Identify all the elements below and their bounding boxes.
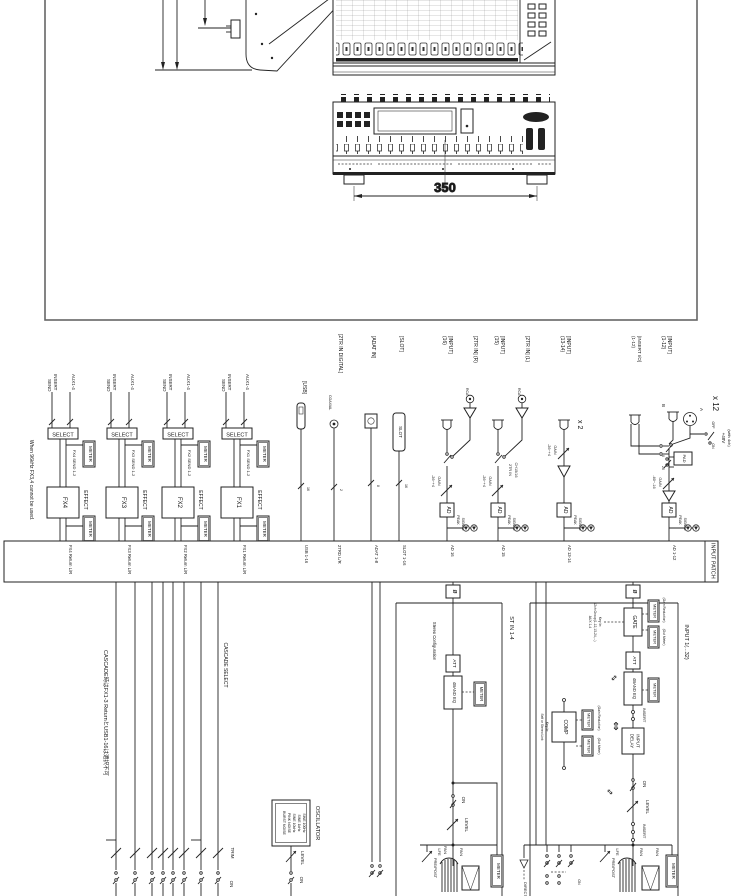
- patch-src: SLOT 1-16: [402, 545, 407, 566]
- cascade-select-section: CASCADE時はFX1-3 ReturnとUSB1-16は選択不可 CASCA…: [102, 582, 235, 896]
- coaxial-label: COAXIAL: [328, 395, 332, 410]
- level-label: LEVEL: [300, 851, 305, 866]
- input-channel-strip: INPUT 1(...32) ø GATE METER METER (Gain …: [520, 582, 689, 896]
- fx-send-label: FX4 SEND 1-2: [72, 450, 77, 477]
- page-canvas: 350 When 96kHz FX3,4 cannot be used. INS…: [0, 0, 734, 896]
- select-label: SELECT: [226, 433, 248, 439]
- fx4-chain: INSERT SEND AUX1-4 SELECT FX4 SEND 1-2 M…: [47, 374, 95, 542]
- slot-label: [SLOT]: [398, 336, 404, 352]
- aux-label: AUX1-4: [71, 374, 76, 390]
- trim-label: TRIM: [230, 848, 235, 859]
- insert-label: INSERT: [642, 708, 647, 723]
- gain-reduction-note: (Gain Reduction): [597, 706, 601, 731]
- osc-source: PINK NOISE: [287, 813, 291, 834]
- patch-src: 2TRD L/R: [337, 545, 342, 564]
- osc-source: SINE 100Hz: [302, 813, 306, 833]
- slot-box-label: SLOT: [398, 426, 403, 438]
- aux-label: AUX1-4: [245, 374, 250, 390]
- comp-label: COMP: [562, 720, 568, 736]
- insert-send-label: INSERT: [168, 374, 173, 391]
- insert-send-label: INSERT: [53, 374, 58, 391]
- fx-send-label: FX2 SEND 1-2: [187, 450, 192, 477]
- adat-input: [ADAT IN] 8: [365, 336, 380, 541]
- scanned-manual-page: 350 When 96kHz FX3,4 cannot be used. INS…: [0, 0, 734, 896]
- meter-label: METER: [262, 521, 267, 538]
- select-label: SELECT: [52, 433, 74, 439]
- patch-src: FX3 Return L/R: [127, 545, 132, 574]
- oscillator-label: OSCILLATOR: [314, 806, 320, 840]
- phone-jack-icon: [667, 412, 679, 422]
- usb-input: [USB] 16: [297, 381, 310, 541]
- pan-label: PAN: [459, 848, 464, 856]
- rca-label: RCA: [465, 388, 469, 396]
- phantom-off-label: OFF: [711, 422, 715, 429]
- foot-left: [344, 175, 364, 184]
- aux-label: AUX1-4: [130, 374, 135, 390]
- width-dimension-label: 350: [434, 180, 456, 195]
- on-label: ON: [577, 879, 581, 885]
- patch-src: FX1 Return L/R: [242, 545, 247, 574]
- osc-source: SINE 10kHz: [292, 813, 296, 832]
- insert-send-label: SEND: [47, 379, 52, 392]
- fx-name: FX4: [61, 497, 67, 509]
- input-num: (1-12): [660, 336, 666, 350]
- insert-send-label: INSERT: [112, 374, 117, 391]
- phase-symbol: ø: [631, 589, 638, 594]
- peak-label: PEAK: [573, 515, 577, 525]
- on-label: ON: [642, 781, 647, 788]
- input-num: (13-14): [559, 336, 565, 352]
- effect-label: EFFECT: [197, 490, 203, 509]
- insert-label: INSERT: [642, 824, 647, 839]
- fx-send-label: FX1 SEND 1-2: [246, 450, 251, 477]
- console-front-view: 350: [333, 94, 555, 201]
- patch-src: AD 15: [501, 545, 506, 557]
- on-label: ON: [299, 877, 304, 884]
- lfe-label: LFE: [437, 848, 442, 856]
- insert-send-label: SEND: [221, 379, 226, 392]
- ad-label: AD: [562, 507, 568, 514]
- comp-module: COMP METER METER (Gain Reduction) (Out M…: [540, 699, 601, 770]
- gate-label: GATE: [631, 615, 637, 629]
- xlr-connector-icon: [684, 413, 697, 426]
- patch-src: FX2 Return L/R: [183, 545, 188, 574]
- comp-keyin-note: Self or Stereo Link: [540, 713, 544, 740]
- meter-label: METER: [653, 630, 658, 644]
- pan-label: PAN: [443, 846, 448, 854]
- ch1516-note: CH15/16: [514, 463, 518, 478]
- gain-range: -26~+4: [431, 475, 435, 487]
- insert-io-label: [INSERT I/O]: [637, 336, 642, 362]
- aux-label: AUX1-4: [186, 374, 191, 390]
- on-label: ON: [229, 881, 234, 888]
- phone-jack-icon: [629, 415, 641, 425]
- input-1-32-label: INPUT 1(...32): [683, 624, 689, 660]
- gain-label: GAIN: [488, 476, 492, 486]
- gate-keyin-note: AUX 1-4: [588, 616, 592, 629]
- eq-label: 4BAND EQ: [632, 678, 637, 700]
- pad-label: PAD: [682, 455, 687, 463]
- fx-name: FX2: [176, 497, 182, 509]
- effect-label: EFFECT: [256, 490, 262, 509]
- gain-label: GAIN: [437, 476, 441, 486]
- adat-label: [ADAT IN]: [370, 336, 376, 359]
- front-knob-row: [336, 136, 523, 154]
- bus-count: 8: [376, 485, 380, 487]
- peak-label: PEAK: [678, 515, 682, 525]
- jack-b-label: B: [661, 404, 666, 407]
- peak-label: PEAK: [507, 515, 511, 525]
- fx1-chain: INSERT SEND AUX1-4 SELECT FX1 SEND 1-2 M…: [221, 374, 269, 542]
- meter-label: METER: [671, 863, 676, 880]
- 2tr-r-label: [2TR IN] (R): [472, 336, 478, 363]
- pan-label: PAN: [655, 848, 660, 856]
- pan-box: [462, 866, 479, 890]
- display: [374, 108, 456, 134]
- patch-src: AD 16: [450, 545, 455, 557]
- lfe-label: LFE: [615, 848, 620, 856]
- insert-io-chain: [INSERT I/O] (1-12): [629, 336, 669, 455]
- on-label: ON: [461, 797, 466, 804]
- signal-label: SIGNAL: [578, 518, 582, 531]
- clamp-bracket: [231, 20, 240, 38]
- comp-keyin-note: Key In:: [545, 722, 549, 732]
- xlr-a-label: A: [699, 408, 704, 411]
- ch1516-note: 2TR IN: [508, 464, 512, 476]
- meter-label: METER: [653, 604, 658, 618]
- select-label: SELECT: [167, 433, 189, 439]
- meter-label: METER: [88, 446, 93, 463]
- slot-input: [SLOT] SLOT 16: [393, 336, 408, 541]
- meter-label: METER: [653, 683, 658, 697]
- phantom-sub-label: (with 4ch): [727, 429, 732, 447]
- console-top-view: [333, 0, 555, 75]
- cascade-switch-contacts: [115, 872, 220, 882]
- fader-row: [336, 42, 523, 56]
- adat-connector-icon: [365, 414, 377, 428]
- direct-out-arrow-icon: [520, 860, 528, 868]
- insert-send-label: SEND: [162, 379, 167, 392]
- phantom-voltage-label: +48V: [721, 433, 726, 444]
- pan-box: [642, 866, 659, 890]
- direct-label: DIRECT: [523, 882, 528, 896]
- select-label: SELECT: [111, 433, 133, 439]
- meter-label: METER: [147, 521, 152, 538]
- eq-label: 4BAND EQ: [452, 682, 457, 704]
- gain-label: GAIN: [553, 445, 557, 455]
- 2tr-in-digital-input: [2TR IN DIGITAL] COAXIAL 2: [328, 334, 343, 541]
- out-meter-note: (Out Meter): [597, 738, 601, 755]
- fx-send-label: FX3 SEND 1-2: [131, 450, 136, 477]
- note-96khz: When 96kHz FX3,4 cannot be used.: [28, 440, 34, 520]
- fx-name: FX1: [235, 497, 241, 509]
- input-1-12-chain: [INPUT] (1-12) x 12 A B OFF ON +48V (wit…: [652, 336, 732, 541]
- bus-count: 16: [306, 487, 310, 491]
- out-meter-note: (Out Meter): [662, 629, 666, 646]
- phone-jack-icon: [492, 420, 504, 430]
- pad-26: 26: [661, 466, 665, 470]
- input-patch-bar: INPUT PATCH FX4 Return L/R FX3 Return L/…: [4, 541, 718, 582]
- signal-label: SIGNAL: [683, 518, 687, 531]
- prepost-label: PRE/POST: [433, 858, 438, 879]
- fx-name: FX3: [120, 497, 126, 509]
- swap-arrow-icon: ⇕: [611, 721, 620, 733]
- input-patch-label: INPUT PATCH: [710, 543, 716, 579]
- meter-label: METER: [88, 521, 93, 538]
- gain-label: GAIN: [658, 477, 662, 487]
- input-delay-label: DELAY: [630, 734, 635, 748]
- oscillator-section: SINE 100Hz SINE 1kHz SINE 10kHz PINK NOI…: [272, 800, 320, 896]
- patch-src: USB 1-16: [304, 545, 309, 564]
- gate-keyin-note: Key In:: [598, 617, 602, 627]
- gain-range: -60~-16: [652, 475, 656, 488]
- dimension-drawing-frame: 350: [45, 0, 697, 320]
- signal-label: SIGNAL: [512, 518, 516, 531]
- patch-src: FX4 Return L/R: [68, 545, 73, 574]
- patch-src: AD 13-14: [567, 545, 572, 563]
- phantom-on-label: ON: [711, 443, 715, 449]
- foot-right: [527, 175, 547, 184]
- bus-count: 16: [404, 484, 408, 488]
- meter-label: METER: [203, 446, 208, 463]
- st-in-label: ST IN 1-4: [508, 616, 514, 639]
- insert-send-label: SEND: [106, 379, 111, 392]
- pad-0: 0: [661, 455, 665, 457]
- pan-label: PAN: [639, 848, 644, 856]
- cascade-select-label: CASCADE SELECT: [222, 642, 228, 687]
- ad-label: AD: [445, 507, 451, 514]
- brand-logo-oval: [523, 112, 549, 122]
- ad-label: AD: [667, 507, 673, 514]
- prepost-label: PRE/POST: [611, 858, 616, 879]
- meter-label: METER: [147, 446, 152, 463]
- phase-symbol: ø: [451, 589, 458, 594]
- meter-label: METER: [496, 863, 501, 880]
- st-in-strip: ST IN 1-4 ø Stereo Configuration ATT 4BA…: [369, 582, 514, 896]
- 2tr-digital-label: [2TR IN DIGITAL]: [337, 334, 343, 374]
- input-15-chain: [INPUT] (15) [2TR IN] (L) RCA CH15/16 2T…: [482, 336, 530, 541]
- block-diagram: When 96kHz FX3,4 cannot be used. INSERT …: [4, 334, 732, 896]
- meter-label: METER: [587, 739, 592, 753]
- console-side-view: [155, 0, 352, 71]
- meter-label: METER: [479, 687, 484, 702]
- att-label: ATT: [452, 659, 457, 667]
- input-num: (15): [493, 336, 499, 345]
- usb-label: [USB]: [301, 381, 307, 395]
- input-delay-label: INPUT: [636, 734, 641, 748]
- meter-label: METER: [587, 713, 592, 727]
- input-num: (16): [441, 336, 447, 345]
- signal-label: SIGNAL: [461, 518, 465, 531]
- 2tr-l-label: [2TR IN] (L): [524, 336, 530, 362]
- stereo-config-label: Stereo Configuration: [432, 622, 437, 661]
- meter-label: METER: [203, 521, 208, 538]
- ad-label: AD: [496, 507, 502, 514]
- x12-multiplier: x 12: [711, 396, 720, 412]
- insert-io-num: (1-12): [631, 336, 636, 349]
- insert-send-label: INSERT: [227, 374, 232, 391]
- meter-label: METER: [262, 446, 267, 463]
- gain-range: -26~+4: [482, 475, 486, 487]
- rca-label: RCA: [517, 388, 521, 396]
- level-label: LEVEL: [645, 800, 650, 815]
- cascade-note-jp: CASCADE時はFX1-3 ReturnとUSB1-16は選択不可: [102, 650, 110, 776]
- fx3-chain: INSERT SEND AUX1-4 SELECT FX3 SEND 1-2 M…: [106, 374, 154, 542]
- input-16-chain: [INPUT] (16) [2TR IN] (R) RCA GAIN -26~+…: [431, 336, 478, 541]
- fx2-chain: INSERT SEND AUX1-4 SELECT FX2 SEND 1-2 M…: [162, 374, 210, 542]
- gate-keyin-note: 12ch Group(1-12,13-24,...): [593, 602, 597, 641]
- bus-count: 2: [339, 489, 343, 491]
- input-13-14-chain: [INPUT] (13-14) x 2 GAIN -26~+4 AD PEAK …: [547, 336, 594, 541]
- level-label: LEVEL: [464, 818, 469, 833]
- osc-source: BURST NOISE: [282, 811, 286, 835]
- gain-range: -26~+4: [547, 444, 551, 456]
- effect-label: EFFECT: [82, 490, 88, 509]
- peak-label: PEAK: [456, 515, 460, 525]
- effect-label: EFFECT: [141, 490, 147, 509]
- att-label: ATT: [632, 656, 637, 664]
- swap-arrow-icon: ⇕: [605, 787, 616, 798]
- patch-src: AD 1-12: [672, 545, 677, 561]
- osc-source: SINE 1kHz: [297, 814, 301, 831]
- gain-reduction-note: (Gain Reduction): [662, 598, 666, 623]
- phone-jack-icon: [558, 420, 570, 430]
- x2-multiplier: x 2: [576, 420, 583, 429]
- phone-jack-icon: [441, 420, 453, 430]
- patch-src: ADAT 1-8: [374, 545, 379, 564]
- rear-connector-tabs: [336, 94, 550, 102]
- swap-arrow-icon: ⇕: [608, 673, 619, 684]
